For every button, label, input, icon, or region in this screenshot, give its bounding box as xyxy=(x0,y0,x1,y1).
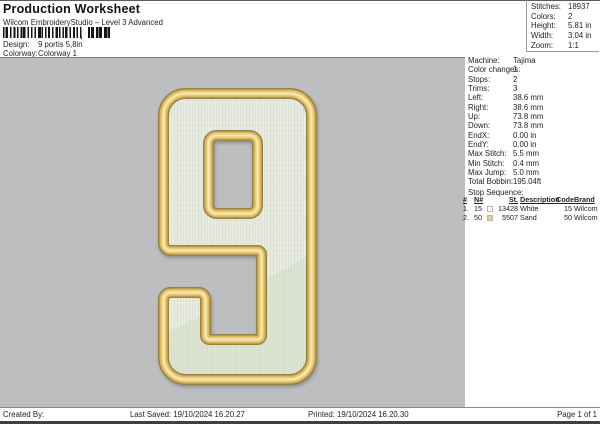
design-value: 9 portis 5,8in xyxy=(38,40,83,49)
stop-sequence-table: # N# St. Description Code Brand 1. 15 13… xyxy=(463,196,599,222)
machine-row: Stops:2 xyxy=(468,75,598,84)
machine-info-panel: Machine:Tajima Color changes:1 Stops:2 T… xyxy=(468,56,598,187)
stat-stitches: Stitches:18937 xyxy=(531,2,599,12)
machine-row: Machine:Tajima xyxy=(468,56,598,65)
stat-height: Height:5.81 in xyxy=(531,21,599,31)
machine-row: Right:38.6 mm xyxy=(468,103,598,112)
numeral-9-glyph xyxy=(164,94,312,380)
numeral-9-design xyxy=(0,58,465,407)
stat-colors: Colors:2 xyxy=(531,12,599,22)
design-label: Design: xyxy=(3,40,38,49)
footer-separator xyxy=(0,407,600,408)
app-version-label: Wilcom EmbroideryStudio – Level 3 Advanc… xyxy=(3,18,163,27)
design-barcode-suffix xyxy=(88,27,112,38)
design-barcode xyxy=(3,27,82,38)
design-canvas xyxy=(0,58,465,407)
footer-page-number: Page 1 of 1 xyxy=(557,410,597,419)
machine-row: Max Stitch:5.5 mm xyxy=(468,149,598,158)
machine-row: Down:73.8 mm xyxy=(468,121,598,130)
machine-row: Max Jump:5.0 mm xyxy=(468,168,598,177)
machine-row: Min Stitch:0.4 mm xyxy=(468,159,598,168)
window-top-edge xyxy=(0,0,600,1)
stat-zoom: Zoom:1:1 xyxy=(531,41,599,51)
machine-row: Up:73.8 mm xyxy=(468,112,598,121)
footer-created-by: Created By: xyxy=(3,410,44,419)
table-row: 2. 50 5507 Sand 50 Wilcom xyxy=(463,214,599,223)
design-stats-box: Stitches:18937 Colors:2 Height:5.81 in W… xyxy=(526,0,599,52)
thread-color-swatch xyxy=(487,215,493,221)
footer-last-saved: Last Saved: 19/10/2024 16.20.27 xyxy=(130,410,245,419)
design-row: Design:9 portis 5,8in xyxy=(3,40,83,49)
thread-color-swatch xyxy=(487,206,493,212)
machine-row: EndY:0.00 in xyxy=(468,140,598,149)
stat-width: Width:3.04 in xyxy=(531,31,599,41)
machine-row: Left:38.6 mm xyxy=(468,93,598,102)
machine-row: Total Bobbin:195.04ft xyxy=(468,177,598,186)
barcode-separator: , xyxy=(80,30,83,40)
machine-row: EndX:0.00 in xyxy=(468,131,598,140)
production-worksheet-page: Production Worksheet Wilcom EmbroiderySt… xyxy=(0,0,600,424)
machine-row: Color changes:1 xyxy=(468,65,598,74)
footer-printed: Printed: 19/10/2024 16.20.30 xyxy=(308,410,409,419)
page-title: Production Worksheet xyxy=(3,2,140,16)
machine-row: Trims:3 xyxy=(468,84,598,93)
